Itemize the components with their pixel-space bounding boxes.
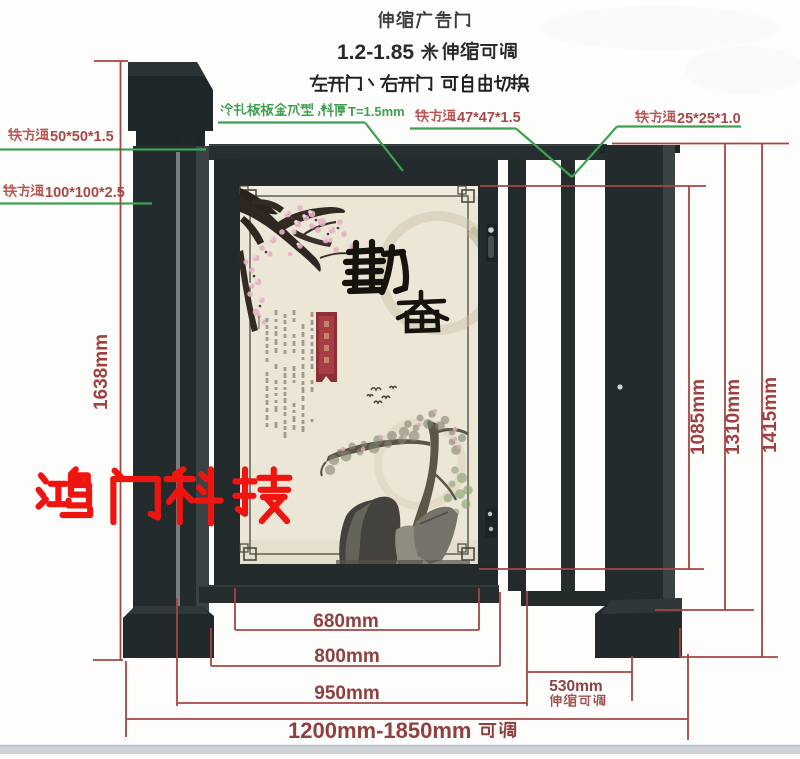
svg-text:1085mm: 1085mm (688, 379, 709, 455)
svg-text:1.2-1.85: 1.2-1.85 (337, 41, 414, 64)
svg-text:T=1.5mm: T=1.5mm (348, 104, 405, 119)
svg-text:47*47*1.5: 47*47*1.5 (457, 110, 521, 126)
svg-text:1415mm: 1415mm (760, 377, 781, 453)
svg-text:1310mm: 1310mm (723, 379, 744, 455)
svg-text:100*100*2.5: 100*100*2.5 (45, 185, 125, 201)
svg-text:530mm: 530mm (549, 678, 602, 695)
svg-text:1200mm-1850mm: 1200mm-1850mm (288, 718, 471, 743)
svg-text:680mm: 680mm (313, 611, 379, 632)
svg-text:800mm: 800mm (314, 646, 380, 667)
svg-text:50*50*1.5: 50*50*1.5 (50, 129, 114, 145)
svg-text:25*25*1.0: 25*25*1.0 (677, 111, 741, 127)
svg-text:1638mm: 1638mm (91, 334, 112, 410)
svg-text:950mm: 950mm (314, 683, 380, 704)
